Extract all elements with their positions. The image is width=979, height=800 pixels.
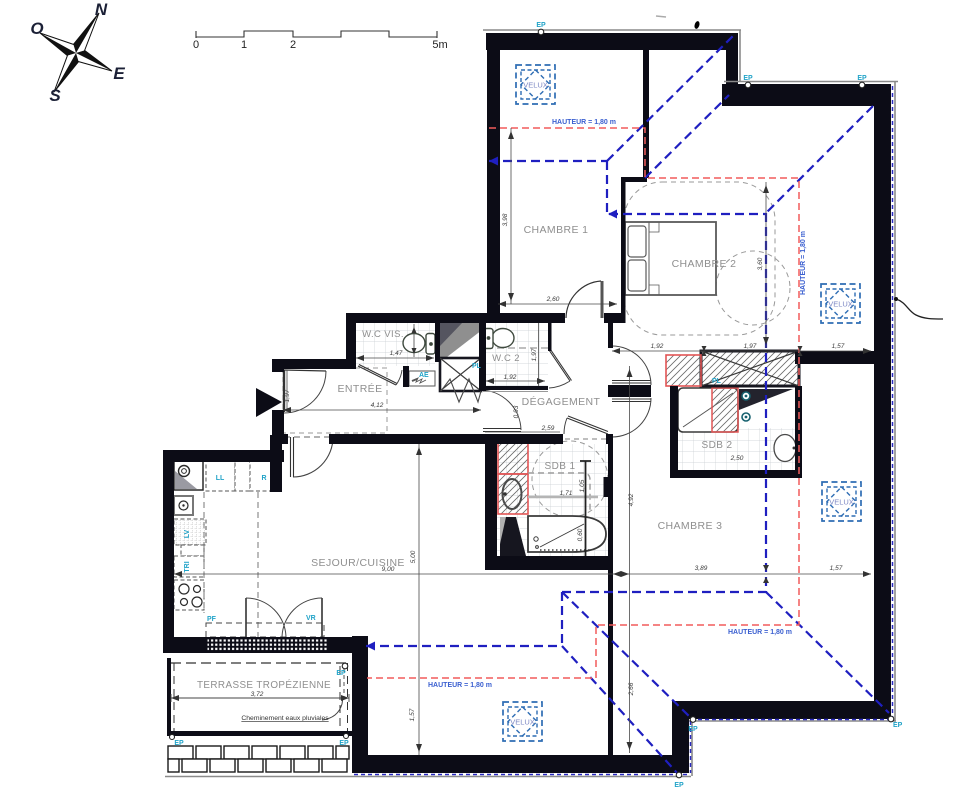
svg-text:EP: EP [536, 22, 546, 29]
svg-text:1,97: 1,97 [531, 348, 538, 361]
svg-text:3,89: 3,89 [695, 565, 708, 572]
svg-text:1,05: 1,05 [579, 479, 586, 492]
svg-text:1,57: 1,57 [830, 565, 843, 572]
svg-text:1,47: 1,47 [390, 350, 403, 357]
svg-text:EP: EP [674, 782, 684, 789]
svg-text:1,57: 1,57 [832, 343, 845, 350]
svg-text:CHAMBRE 1: CHAMBRE 1 [524, 224, 589, 236]
svg-text:HAUTEUR = 1,80 m: HAUTEUR = 1,80 m [800, 231, 807, 295]
svg-text:LV: LV [184, 529, 191, 538]
svg-text:EP: EP [688, 726, 698, 733]
svg-text:S: S [49, 86, 61, 105]
svg-text:1,71: 1,71 [560, 490, 573, 497]
svg-text:1,57: 1,57 [409, 708, 416, 721]
svg-text:PF: PF [207, 616, 217, 623]
svg-text:HAUTEUR = 1,80 m: HAUTEUR = 1,80 m [428, 682, 492, 689]
svg-text:E: E [113, 64, 125, 83]
svg-text:HAUTEUR = 1,80 m: HAUTEUR = 1,80 m [728, 629, 792, 636]
svg-text:EP: EP [743, 75, 753, 82]
svg-text:TERRASSE TROPÉZIENNE: TERRASSE TROPÉZIENNE [197, 680, 331, 691]
svg-text:1,92: 1,92 [504, 374, 517, 381]
svg-text:2,66: 2,66 [628, 682, 635, 696]
svg-text:AE: AE [419, 372, 429, 379]
svg-text:1,97: 1,97 [284, 389, 291, 402]
svg-text:DÉGAGEMENT: DÉGAGEMENT [522, 395, 601, 408]
svg-text:2: 2 [290, 39, 296, 51]
svg-text:1: 1 [241, 39, 247, 51]
svg-text:0: 0 [193, 39, 199, 51]
svg-text:2,60: 2,60 [546, 296, 560, 303]
svg-text:3,72: 3,72 [251, 691, 264, 698]
svg-text:Cheminement eaux pluviales: Cheminement eaux pluviales [241, 715, 329, 722]
svg-text:R: R [261, 475, 266, 482]
svg-text:SDB 1: SDB 1 [545, 461, 576, 472]
svg-text:3,98: 3,98 [502, 213, 509, 226]
svg-text:0,93: 0,93 [513, 405, 520, 418]
svg-text:5m: 5m [432, 39, 447, 51]
svg-text:EP: EP [857, 75, 867, 82]
svg-text:EP: EP [893, 722, 903, 729]
svg-text:0,60: 0,60 [577, 528, 584, 541]
svg-text:4,12: 4,12 [371, 402, 384, 409]
svg-text:9,00: 9,00 [382, 566, 395, 573]
svg-text:5,00: 5,00 [410, 550, 417, 563]
svg-text:EP: EP [336, 670, 346, 677]
svg-text:1,97: 1,97 [744, 343, 757, 350]
svg-text:W.C VIS.: W.C VIS. [362, 329, 404, 340]
svg-text:TRI: TRI [184, 561, 191, 572]
svg-text:1,92: 1,92 [651, 343, 664, 350]
svg-text:VR: VR [306, 615, 316, 622]
svg-text:EP: EP [174, 740, 184, 747]
svg-text:O: O [30, 19, 43, 38]
svg-text:ENTRÉE: ENTRÉE [338, 382, 383, 395]
svg-text:3,60: 3,60 [757, 257, 764, 270]
svg-text:W.C 2: W.C 2 [492, 353, 520, 364]
svg-text:PL: PL [472, 363, 482, 370]
svg-text:2,50: 2,50 [730, 455, 744, 462]
svg-text:EP: EP [339, 740, 349, 747]
svg-text:CHAMBRE 3: CHAMBRE 3 [658, 520, 723, 532]
svg-text:LL: LL [216, 475, 225, 482]
svg-text:CHAMBRE 2: CHAMBRE 2 [672, 258, 737, 270]
svg-text:SDB 2: SDB 2 [702, 440, 733, 451]
svg-text:PL: PL [712, 378, 722, 385]
svg-text:HAUTEUR = 1,80 m: HAUTEUR = 1,80 m [552, 119, 616, 126]
svg-text:4,92: 4,92 [628, 493, 635, 506]
svg-text:N: N [95, 0, 108, 19]
svg-text:2,59: 2,59 [541, 425, 555, 432]
